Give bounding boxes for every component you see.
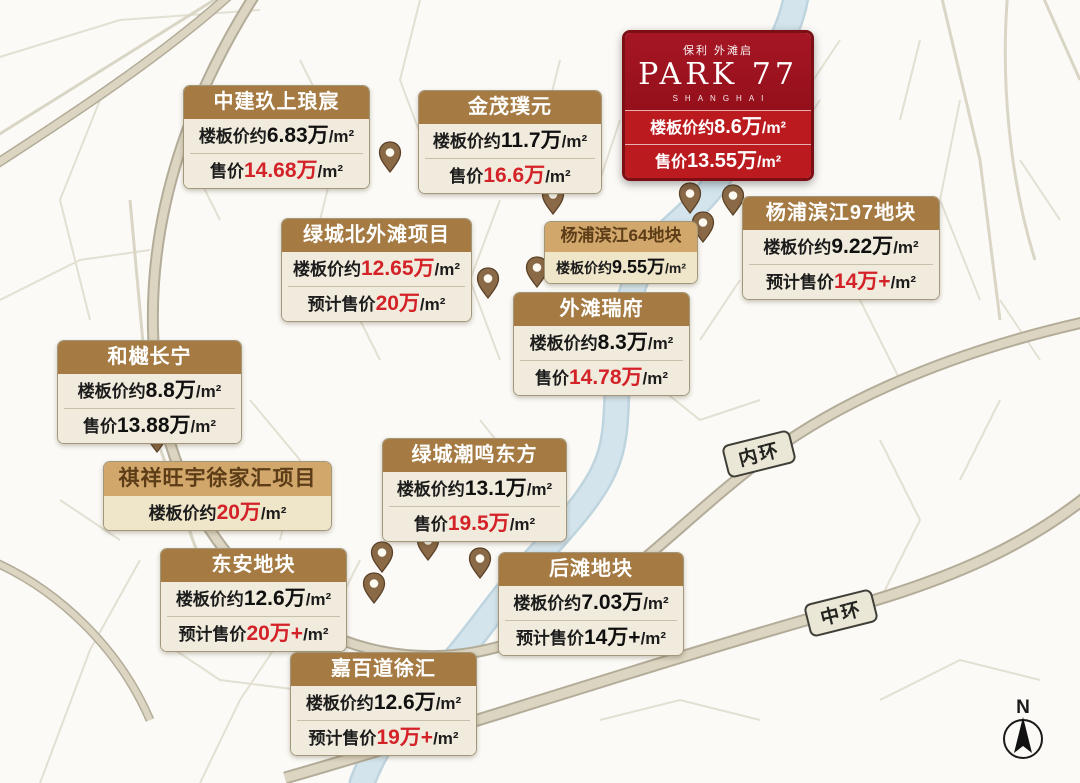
price-unit: /m² xyxy=(303,625,329,644)
park77-prices: 楼板价约8.6万/m² 售价13.55万/m² xyxy=(625,110,811,178)
price-label: 楼板价约 xyxy=(176,590,244,609)
price-unit: /m² xyxy=(762,120,786,137)
price-value: 19万+ xyxy=(376,726,433,749)
expected-sale-price-row: 预计售价14万+/m² xyxy=(505,620,677,655)
expected-sale-price-row: 预计售价20万+/m² xyxy=(167,616,340,651)
floor-price-row: 楼板价约12.6万/m² xyxy=(297,686,470,720)
price-label: 预计售价 xyxy=(308,729,376,748)
price-value: 14万+ xyxy=(584,626,641,649)
floor-price-row: 楼板价约7.03万/m² xyxy=(505,586,677,620)
sale-price-row: 售价14.68万/m² xyxy=(190,153,363,188)
price-label: 售价 xyxy=(210,162,244,181)
price-value: 14.78万 xyxy=(569,366,643,389)
price-label: 售价 xyxy=(83,417,117,436)
price-unit: /m² xyxy=(435,260,461,279)
price-value: 9.22万 xyxy=(831,235,893,258)
floor-price-row: 楼板价约13.1万/m² xyxy=(389,472,560,506)
price-value: 13.88万 xyxy=(117,414,191,437)
floor-price-row: 楼板价约8.6万/m² xyxy=(625,111,811,144)
project-card-body: 楼板价约12.6万/m² 预计售价19万+/m² xyxy=(291,686,476,755)
price-label: 楼板价约 xyxy=(149,504,217,523)
price-unit: /m² xyxy=(261,504,287,523)
price-label: 楼板价约 xyxy=(650,120,714,137)
floor-price-row: 楼板价约8.3万/m² xyxy=(520,326,683,360)
price-unit: /m² xyxy=(891,273,917,292)
map-pin-icon xyxy=(723,185,744,215)
price-value: 19.5万 xyxy=(448,512,510,535)
price-unit: /m² xyxy=(893,238,919,257)
project-card-body: 楼板价约20万/m² xyxy=(104,496,331,530)
price-label: 预计售价 xyxy=(178,625,246,644)
project-card-body: 楼板价约12.6万/m² 预计售价20万+/m² xyxy=(161,582,346,651)
floor-price-row: 楼板价约9.22万/m² xyxy=(749,230,933,264)
price-value: 13.55万 xyxy=(687,150,757,172)
project-card: 杨浦滨江97地块 楼板价约9.22万/m² 预计售价14万+/m² xyxy=(742,196,940,300)
project-card-body: 楼板价约9.22万/m² 预计售价14万+/m² xyxy=(743,230,939,299)
project-name: 外滩瑞府 xyxy=(514,293,689,326)
price-unit: /m² xyxy=(510,515,536,534)
compass-label: N xyxy=(1016,697,1030,718)
price-value: 12.6万 xyxy=(374,691,436,714)
project-name: 绿城北外滩项目 xyxy=(282,219,471,252)
project-card-body: 楼板价约9.55万/m² xyxy=(545,252,697,283)
sale-price-row: 售价13.55万/m² xyxy=(625,144,811,178)
price-unit: /m² xyxy=(433,729,459,748)
price-label: 售价 xyxy=(414,515,448,534)
price-unit: /m² xyxy=(306,590,332,609)
park77-brand-sub: SHANGHAI xyxy=(629,94,807,103)
project-name: 东安地块 xyxy=(161,549,346,582)
price-unit: /m² xyxy=(329,127,355,146)
project-card-body: 楼板价约7.03万/m² 预计售价14万+/m² xyxy=(499,586,683,655)
price-unit: /m² xyxy=(643,369,669,388)
price-value: 7.03万 xyxy=(581,591,643,614)
map-pin-icon xyxy=(372,542,393,572)
price-value: 20万 xyxy=(217,501,261,524)
project-name: 祺祥旺宇徐家汇项目 xyxy=(104,462,331,496)
price-label: 楼板价约 xyxy=(763,238,831,257)
price-value: 16.6万 xyxy=(483,164,545,187)
price-unit: /m² xyxy=(665,260,686,276)
project-card: 和樾长宁 楼板价约8.8万/m² 售价13.88万/m² xyxy=(57,340,242,444)
price-label: 预计售价 xyxy=(516,629,584,648)
price-unit: /m² xyxy=(757,154,781,171)
price-label: 预计售价 xyxy=(766,273,834,292)
price-value: 12.6万 xyxy=(244,587,306,610)
price-unit: /m² xyxy=(641,629,667,648)
price-label: 楼板价约 xyxy=(433,132,501,151)
price-value: 12.65万 xyxy=(361,257,435,280)
price-unit: /m² xyxy=(420,295,446,314)
project-card-body: 楼板价约11.7万/m² 售价16.6万/m² xyxy=(419,124,601,193)
project-card: 绿城北外滩项目 楼板价约12.65万/m² 预计售价20万/m² xyxy=(281,218,472,322)
floor-price-row: 楼板价约20万/m² xyxy=(110,496,325,530)
price-label: 售价 xyxy=(655,154,687,171)
price-unit: /m² xyxy=(643,594,669,613)
price-label: 楼板价约 xyxy=(199,127,267,146)
sale-price-row: 售价14.78万/m² xyxy=(520,360,683,395)
project-card-body: 楼板价约8.3万/m² 售价14.78万/m² xyxy=(514,326,689,395)
expected-sale-price-row: 预计售价14万+/m² xyxy=(749,264,933,299)
project-name: 和樾长宁 xyxy=(58,341,241,374)
map-pin-icon xyxy=(470,548,491,578)
price-value: 8.6万 xyxy=(714,116,762,138)
park77-card: 保利 外滩启 PARK 77 SHANGHAI 楼板价约8.6万/m² 售价13… xyxy=(622,30,814,181)
park77-brand-name: PARK 77 xyxy=(629,59,807,91)
project-card-body: 楼板价约13.1万/m² 售价19.5万/m² xyxy=(383,472,566,541)
price-value: 8.8万 xyxy=(146,379,196,402)
price-value: 13.1万 xyxy=(465,477,527,500)
compass-north-arrow: N xyxy=(1004,697,1042,758)
park77-brand-small: 保利 外滩启 xyxy=(629,42,807,58)
price-label: 楼板价约 xyxy=(530,334,598,353)
park77-logo: 保利 外滩启 PARK 77 SHANGHAI xyxy=(625,33,811,110)
price-value: 14万+ xyxy=(834,270,891,293)
price-value: 8.3万 xyxy=(598,331,648,354)
floor-price-row: 楼板价约8.8万/m² xyxy=(64,374,235,408)
price-label: 楼板价约 xyxy=(78,382,146,401)
sale-price-row: 售价16.6万/m² xyxy=(425,158,595,193)
price-label: 售价 xyxy=(535,369,569,388)
sale-price-row: 售价19.5万/m² xyxy=(389,506,560,541)
project-card: 绿城潮鸣东方 楼板价约13.1万/m² 售价19.5万/m² xyxy=(382,438,567,542)
project-name: 嘉百道徐汇 xyxy=(291,653,476,686)
project-card-body: 楼板价约12.65万/m² 预计售价20万/m² xyxy=(282,252,471,321)
map-pin-icon xyxy=(380,142,401,172)
project-card: 金茂璞元 楼板价约11.7万/m² 售价16.6万/m² xyxy=(418,90,602,194)
price-label: 楼板价约 xyxy=(293,260,361,279)
map-pin-icon xyxy=(364,573,385,603)
price-label: 楼板价约 xyxy=(513,594,581,613)
price-value: 11.7万 xyxy=(501,129,562,152)
project-card: 嘉百道徐汇 楼板价约12.6万/m² 预计售价19万+/m² xyxy=(290,652,477,756)
price-label: 楼板价约 xyxy=(306,694,374,713)
floor-price-row: 楼板价约11.7万/m² xyxy=(425,124,595,158)
price-value: 20万 xyxy=(376,292,420,315)
project-card: 祺祥旺宇徐家汇项目 楼板价约20万/m² xyxy=(103,461,332,531)
floor-price-row: 楼板价约12.65万/m² xyxy=(288,252,465,286)
sale-price-row: 售价13.88万/m² xyxy=(64,408,235,443)
price-unit: /m² xyxy=(545,167,571,186)
price-value: 9.55万 xyxy=(612,257,665,277)
price-value: 14.68万 xyxy=(244,159,318,182)
project-card: 中建玖上琅宸 楼板价约6.83万/m² 售价14.68万/m² xyxy=(183,85,370,189)
price-label: 售价 xyxy=(449,167,483,186)
floor-price-row: 楼板价约9.55万/m² xyxy=(551,252,691,283)
price-unit: /m² xyxy=(191,417,217,436)
price-value: 20万+ xyxy=(246,622,303,645)
project-name: 绿城潮鸣东方 xyxy=(383,439,566,472)
expected-sale-price-row: 预计售价20万/m² xyxy=(288,286,465,321)
price-label: 楼板价约 xyxy=(397,480,465,499)
price-value: 6.83万 xyxy=(267,124,329,147)
map-infographic: N 内环 中环 保利 外滩启 PARK 77 SHANGHAI 楼板价约8.6万… xyxy=(0,0,1080,783)
project-card: 外滩瑞府 楼板价约8.3万/m² 售价14.78万/m² xyxy=(513,292,690,396)
price-unit: /m² xyxy=(196,382,222,401)
project-name: 杨浦滨江64地块 xyxy=(545,222,697,252)
project-name: 后滩地块 xyxy=(499,553,683,586)
project-card: 东安地块 楼板价约12.6万/m² 预计售价20万+/m² xyxy=(160,548,347,652)
project-card: 后滩地块 楼板价约7.03万/m² 预计售价14万+/m² xyxy=(498,552,684,656)
price-unit: /m² xyxy=(648,334,674,353)
project-name: 金茂璞元 xyxy=(419,91,601,124)
map-pin-icon xyxy=(478,268,499,298)
floor-price-row: 楼板价约6.83万/m² xyxy=(190,119,363,153)
project-name: 中建玖上琅宸 xyxy=(184,86,369,119)
price-label: 楼板价约 xyxy=(556,260,612,276)
floor-price-row: 楼板价约12.6万/m² xyxy=(167,582,340,616)
price-label: 预计售价 xyxy=(308,295,376,314)
price-unit: /m² xyxy=(318,162,344,181)
project-name: 杨浦滨江97地块 xyxy=(743,197,939,230)
project-card-body: 楼板价约8.8万/m² 售价13.88万/m² xyxy=(58,374,241,443)
price-unit: /m² xyxy=(436,694,462,713)
price-unit: /m² xyxy=(527,480,553,499)
expected-sale-price-row: 预计售价19万+/m² xyxy=(297,720,470,755)
project-card: 杨浦滨江64地块 楼板价约9.55万/m² xyxy=(544,221,698,284)
project-card-body: 楼板价约6.83万/m² 售价14.68万/m² xyxy=(184,119,369,188)
price-unit: /m² xyxy=(562,132,588,151)
